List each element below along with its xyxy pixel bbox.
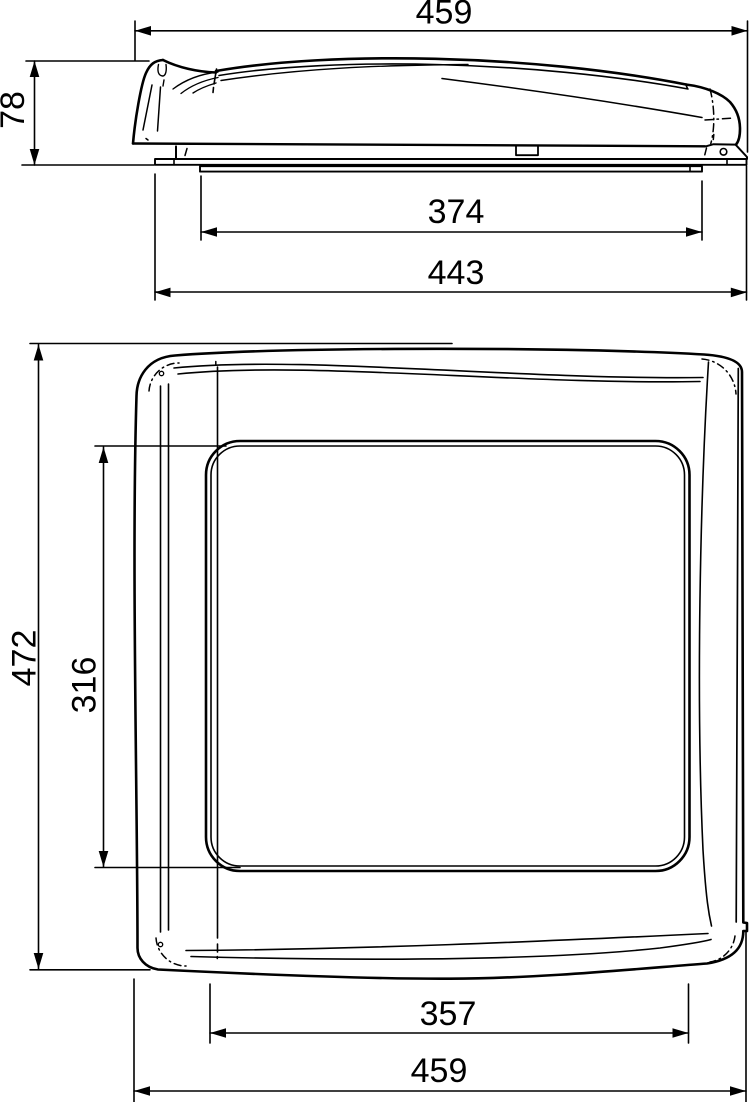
svg-text:357: 357	[420, 995, 477, 1033]
svg-text:78: 78	[0, 91, 32, 129]
svg-text:316: 316	[66, 657, 104, 714]
svg-text:472: 472	[6, 630, 44, 687]
svg-text:443: 443	[428, 254, 485, 292]
svg-text:459: 459	[411, 1052, 468, 1090]
svg-text:374: 374	[428, 193, 485, 231]
svg-text:459: 459	[416, 0, 473, 32]
